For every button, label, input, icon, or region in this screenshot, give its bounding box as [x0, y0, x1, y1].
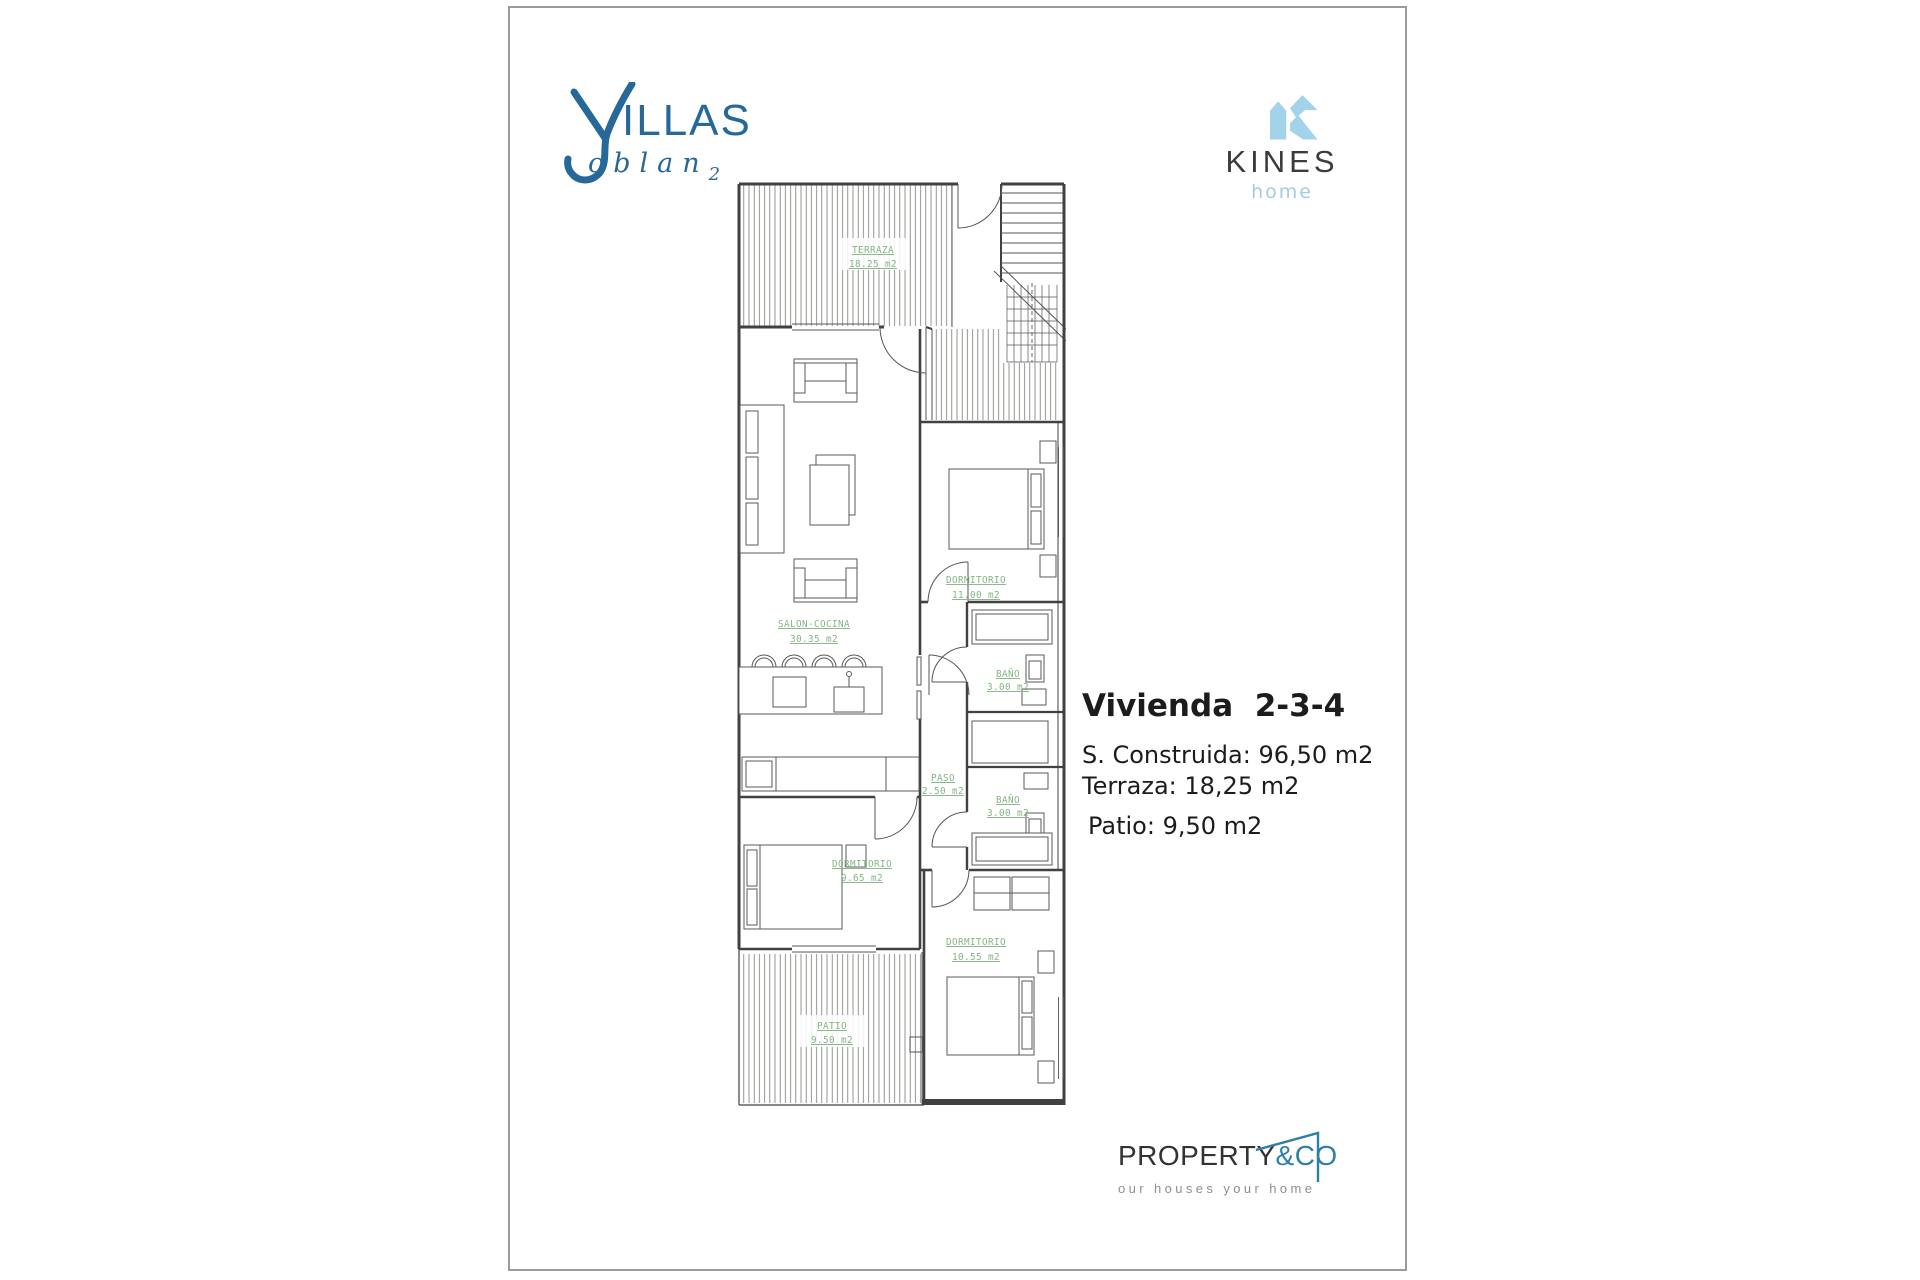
- room-area-terraza: 18.25 m2: [849, 259, 897, 270]
- bedroom-2-furniture: [744, 845, 866, 929]
- villas-script-sub: 2: [709, 164, 720, 185]
- stairs: [994, 184, 1066, 362]
- kines-home-logo: KINES home: [1202, 92, 1362, 203]
- room-label-patio: PATIO: [817, 1021, 847, 1032]
- room-label-dormitorio-2: DORMITORIO: [832, 859, 892, 870]
- kines-home-text: home: [1202, 181, 1362, 203]
- terrace-area: [740, 184, 1058, 420]
- closet: [972, 721, 1048, 763]
- room-label-terraza: TERRAZA: [852, 245, 894, 256]
- built-area-line: S. Construida: 96,50 m2: [1082, 740, 1382, 771]
- kitchen: [739, 655, 919, 791]
- room-label-bano-1: BAÑO: [996, 669, 1020, 680]
- room-area-dormitorio-2: 9.65 m2: [841, 873, 883, 884]
- bedroom-3-furniture: [947, 877, 1054, 1083]
- canvas: ILLAS oblan2 KINES home: [0, 0, 1920, 1280]
- room-label-salon: SALON-COCINA: [778, 619, 850, 630]
- property-co-wordmark: PROPERTY&CO: [1118, 1140, 1378, 1178]
- unit-info: Vivienda 2-3-4 S. Construida: 96,50 m2 T…: [1082, 688, 1382, 842]
- room-label-paso: PASO: [931, 773, 955, 784]
- room-area-bano-1: 3.00 m2: [987, 682, 1029, 693]
- room-area-bano-2: 3.00 m2: [987, 808, 1029, 819]
- unit-title: Vivienda 2-3-4: [1082, 688, 1382, 724]
- brochure-page: ILLAS oblan2 KINES home: [508, 6, 1407, 1271]
- room-label-bano-2: BAÑO: [996, 795, 1020, 806]
- patio-area-line: Patio: 9,50 m2: [1082, 811, 1382, 842]
- room-area-dormitorio-3: 10.55 m2: [952, 952, 1000, 963]
- bedroom-1-furniture: [949, 441, 1056, 577]
- room-label-dormitorio-1: DORMITORIO: [946, 575, 1006, 586]
- villas-wordmark: ILLAS: [622, 96, 752, 146]
- property-tagline: our houses your home: [1118, 1181, 1378, 1196]
- room-label-dormitorio-3: DORMITORIO: [946, 937, 1006, 948]
- property-roof-icon: [1254, 1130, 1326, 1186]
- villas-joblan-logo: ILLAS oblan2: [560, 82, 790, 192]
- property-text: PROPERTY: [1118, 1140, 1276, 1171]
- floor-plan: TERRAZA 18.25 m2 SALON-COCINA 30.35 m2 D…: [736, 177, 1066, 1122]
- bathroom-2-fixtures: [972, 773, 1052, 865]
- room-area-dormitorio-1: 11.00 m2: [952, 590, 1000, 601]
- living-furniture: [740, 359, 857, 602]
- villas-script-text: oblan2: [588, 148, 720, 185]
- property-co-logo: PROPERTY&CO our houses your home: [1118, 1140, 1378, 1196]
- kines-house-icon: [1266, 92, 1324, 142]
- terrace-area-line: Terraza: 18,25 m2: [1082, 771, 1382, 802]
- room-area-patio: 9.50 m2: [811, 1035, 853, 1046]
- room-area-salon: 30.35 m2: [790, 634, 838, 645]
- kines-wordmark: KINES: [1202, 144, 1362, 180]
- room-area-paso: 2.50 m2: [922, 786, 964, 797]
